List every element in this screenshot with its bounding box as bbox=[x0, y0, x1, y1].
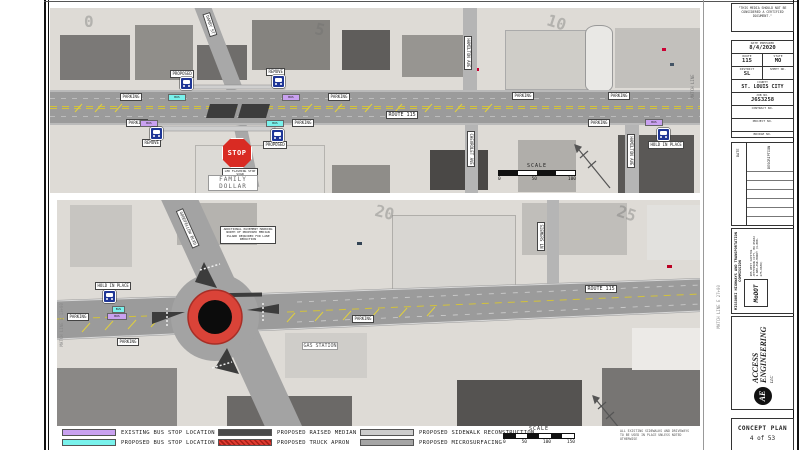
bus-zone-label: BUS bbox=[116, 307, 121, 311]
bottom-roads-drawing bbox=[57, 200, 700, 426]
gas-station-label: GAS STATION bbox=[302, 342, 338, 350]
legend-item: PROPOSED MICROSURFACING bbox=[360, 439, 502, 446]
parking-label: PARKING bbox=[608, 92, 630, 100]
family-dollar-label: FAMILY DOLLAR bbox=[208, 175, 258, 191]
legend-label: PROPOSED RAISED MEDIAN bbox=[277, 430, 356, 436]
top-roads-drawing bbox=[50, 8, 700, 193]
parking-label: PARKING bbox=[117, 338, 139, 346]
field-label: CONTRACT NO. bbox=[732, 106, 793, 110]
bus-stop-icon bbox=[103, 290, 116, 303]
existing-bus-stop-zone: BUS bbox=[282, 94, 300, 101]
legend-item: EXISTING BUS STOP LOCATION bbox=[62, 429, 215, 436]
north-arrow-icon bbox=[575, 145, 610, 188]
field-value: ST. LOUIS CITY bbox=[732, 84, 793, 91]
revision-description-header: DESCRIPTION bbox=[767, 146, 771, 169]
revision-table: DATE DESCRIPTION bbox=[731, 142, 794, 226]
legend-item: PROPOSED TRUCK APRON bbox=[218, 439, 349, 446]
scale-tick: 50 bbox=[532, 177, 537, 182]
scale-tick: 100 bbox=[543, 440, 551, 445]
border-right-outer bbox=[797, 0, 799, 450]
modot-logo: MoDOT bbox=[744, 280, 768, 308]
bus-zone-label: BUS bbox=[146, 121, 151, 125]
scale-tick: 50 bbox=[522, 440, 527, 445]
legend-label: EXISTING BUS STOP LOCATION bbox=[121, 430, 215, 436]
parking-label: PARKING bbox=[512, 92, 534, 100]
border-top bbox=[44, 1, 798, 2]
parking-label: PARKING bbox=[328, 93, 350, 101]
agency-name: MISSOURI HIGHWAYS AND TRANSPORTATION COM… bbox=[732, 229, 742, 313]
street-label-chevrolet: CHEVROLET AVE bbox=[467, 131, 475, 167]
bus-note-hold: HOLD IN PLACE bbox=[95, 282, 131, 290]
revision-date-header: DATE bbox=[736, 149, 740, 157]
legend-label: PROPOSED TRUCK APRON bbox=[277, 440, 349, 446]
firm-suffix: LLC bbox=[769, 321, 774, 383]
top-plan-view: 0 5 10 DARBY ST HAMILTON AVE CHEVROLET A… bbox=[50, 8, 700, 193]
match-line-label-13: MATCH LINE E 13+00 bbox=[59, 302, 65, 348]
field-value: MO bbox=[763, 58, 793, 65]
bottom-plan-view: 20 25 GOODFELLOW BLVD SIEMERS LN ROUTE 1… bbox=[57, 200, 700, 426]
legend-swatch-proposed-bus bbox=[62, 439, 116, 446]
scale-tick: 150 bbox=[567, 440, 575, 445]
bus-stop-icon bbox=[150, 127, 163, 140]
street-label-hamilton-s: HAMILTON AVE bbox=[627, 134, 635, 168]
bus-zone-label: BUS bbox=[651, 120, 656, 124]
bus-note-proposed: PROPOSED bbox=[263, 141, 287, 149]
modot-address: 105 WEST CAPITOL JEFFERSON CITY, MO 6510… bbox=[750, 235, 764, 277]
scale-tick: 0 bbox=[498, 177, 501, 182]
bus-zone-label: BUS bbox=[114, 314, 119, 318]
legend-item: PROPOSED RAISED MEDIAN bbox=[218, 429, 356, 436]
modot-logo-text: MoDOT bbox=[753, 284, 760, 302]
bus-stop-icon bbox=[180, 77, 193, 90]
bus-zone-label: BUS bbox=[288, 95, 293, 99]
route-label: ROUTE 115 bbox=[386, 111, 418, 119]
sheet-title: CONCEPT PLAN bbox=[732, 425, 793, 432]
legend-item: PROPOSED BUS STOP LOCATION bbox=[62, 439, 215, 446]
top-scale-bar: SCALE 0 50 100 bbox=[498, 163, 576, 182]
bus-stop-icon bbox=[657, 128, 670, 141]
stop-sign: STOP bbox=[222, 138, 252, 168]
field-label: BRIDGE NO. bbox=[732, 132, 793, 136]
scale-tick: 100 bbox=[568, 177, 576, 182]
sheet-number: 4 of 53 bbox=[732, 435, 793, 442]
border-left-outer bbox=[44, 0, 46, 450]
existing-bus-stop-zone: BUS bbox=[645, 119, 663, 126]
parking-label: PARKING bbox=[352, 315, 374, 323]
station-number: 0 bbox=[84, 12, 94, 31]
commission-block: MISSOURI HIGHWAYS AND TRANSPORTATION COM… bbox=[731, 228, 794, 314]
legend-swatch-sidewalk bbox=[360, 429, 414, 436]
street-label-hamilton-n: HAMILTON AVE bbox=[464, 36, 472, 70]
parking-label: PARKING bbox=[292, 119, 314, 127]
sheet-title-box: CONCEPT PLAN 4 of 53 bbox=[731, 418, 794, 450]
bus-stop-icon bbox=[272, 75, 285, 88]
legend-swatch-existing-bus bbox=[62, 429, 116, 436]
match-line-label: MATCH LINE bbox=[690, 73, 696, 100]
field-label: SHEET NO. bbox=[763, 67, 793, 71]
parking-label: PARKING bbox=[120, 93, 142, 101]
access-engineering-logo: AE bbox=[754, 387, 772, 405]
plan-sheet: 0 5 10 DARBY ST HAMILTON AVE CHEVROLET A… bbox=[0, 0, 800, 450]
border-left-inner bbox=[48, 0, 49, 450]
bottom-scale-bar: SCALE 0 50 100 150 bbox=[503, 426, 575, 445]
title-block-fields: DATE PREPARED 8/4/2020 ROUTE 115 STATE M… bbox=[731, 40, 794, 138]
bus-zone-label: BUS bbox=[272, 121, 277, 125]
proposed-bus-stop-zone: BUS bbox=[112, 306, 125, 313]
field-value: 115 bbox=[732, 58, 762, 65]
proposed-bus-stop-zone: BUS bbox=[266, 120, 284, 127]
scale-title: SCALE bbox=[503, 426, 575, 432]
parking-label: PARKING bbox=[67, 313, 89, 321]
legend-label: PROPOSED MICROSURFACING bbox=[419, 440, 502, 446]
stop-sign-text: STOP bbox=[228, 149, 247, 157]
parking-label: PARKING bbox=[588, 119, 610, 127]
firm-block: AE ACCESS ENGINEERING LLC bbox=[731, 316, 794, 410]
bus-note-hold: HOLD IN PLACE bbox=[648, 141, 684, 149]
bus-stop-icon bbox=[271, 129, 284, 142]
scale-title: SCALE bbox=[498, 163, 576, 169]
field-value: J6S3258 bbox=[732, 97, 793, 104]
field-value: 8/4/2020 bbox=[732, 45, 793, 52]
disclaimer-box: "THIS MEDIA SHOULD NOT BE CONSIDERED A C… bbox=[731, 3, 794, 32]
legend-swatch-raised-median bbox=[218, 429, 272, 436]
sidewalks-note: ALL EXISTING SIDEWALKS AND DRIVEWAYS TO … bbox=[620, 430, 692, 441]
firm-initials: AE bbox=[758, 391, 767, 402]
existing-bus-stop-zone: BUS bbox=[107, 313, 127, 320]
existing-bus-stop-zone: BUS bbox=[140, 120, 158, 127]
legend-swatch-microsurfacing bbox=[360, 439, 414, 446]
firm-name: ACCESS ENGINEERING bbox=[752, 321, 769, 383]
route-label: ROUTE 115 bbox=[585, 285, 617, 293]
field-value: SL bbox=[732, 71, 762, 78]
bus-zone-label: BUS bbox=[174, 95, 179, 99]
bus-note-remove: REMOVE bbox=[142, 139, 161, 147]
proposed-bus-stop-zone: BUS bbox=[168, 94, 186, 101]
title-block-divider bbox=[703, 0, 704, 450]
north-arrow-icon bbox=[593, 396, 629, 426]
street-label-siemers: SIEMERS LN bbox=[537, 222, 545, 251]
match-line-label-27: MATCH LINE E 27+00 bbox=[716, 284, 722, 330]
legend-swatch-truck-apron bbox=[218, 439, 272, 446]
pavement-marking-note: ADDITIONAL PAVEMENT MARKING NORTH OF PRO… bbox=[220, 226, 276, 244]
disclaimer-text: "THIS MEDIA SHOULD NOT BE CONSIDERED A C… bbox=[732, 4, 793, 20]
field-label: PROJECT NO. bbox=[732, 119, 793, 123]
legend-label: PROPOSED BUS STOP LOCATION bbox=[121, 440, 215, 446]
scale-tick: 0 bbox=[503, 440, 506, 445]
